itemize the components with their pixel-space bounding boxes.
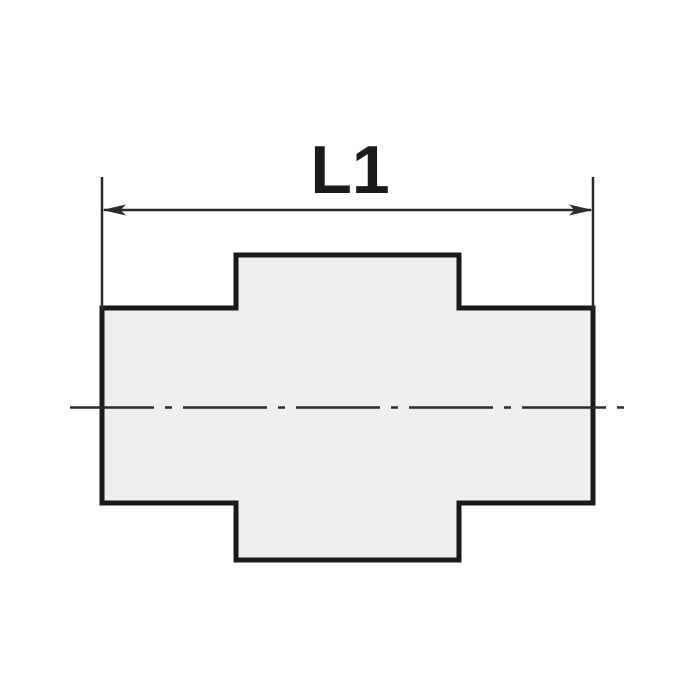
technical-drawing: L1 xyxy=(0,0,700,700)
dimension-label: L1 xyxy=(310,132,389,208)
drawing-page: L1 xyxy=(0,0,700,700)
